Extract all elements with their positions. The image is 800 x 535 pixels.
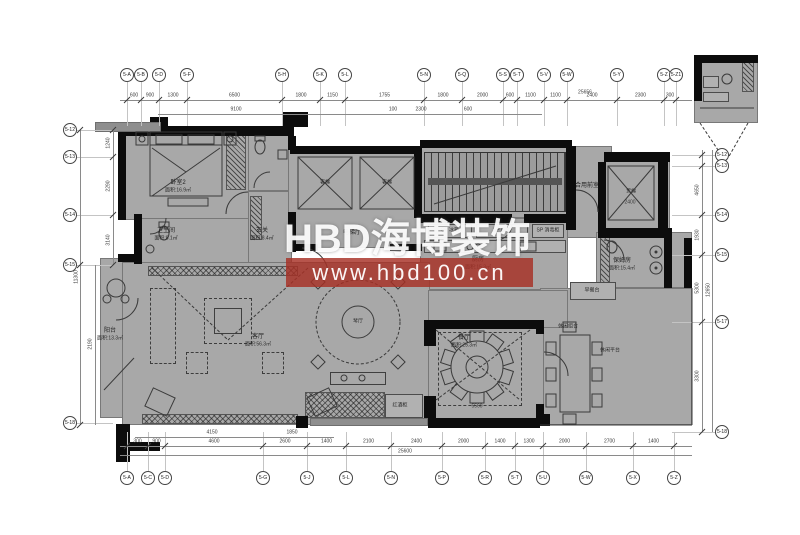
lounge-chair xyxy=(307,388,337,416)
grid-bubble: 5-13 xyxy=(715,159,729,173)
door-arc xyxy=(116,298,138,320)
dining-table xyxy=(451,341,503,393)
dim-tick xyxy=(459,97,465,103)
room-label: 厨房 xyxy=(472,257,484,263)
dimension-label: 300 xyxy=(133,440,141,445)
dimension-label: 1400 xyxy=(321,440,332,445)
grid-bubble: 5-T xyxy=(508,471,522,485)
burner xyxy=(475,244,481,250)
room-label: 阳台 xyxy=(104,328,116,334)
dim-tick xyxy=(184,97,190,103)
dimension-label: 9100 xyxy=(230,108,241,113)
dim-tick xyxy=(304,443,310,449)
grid-bubble: 5-L xyxy=(339,471,353,485)
grid-bubble: 5-18 xyxy=(715,425,729,439)
leisure-chair xyxy=(546,368,556,381)
dim-tick xyxy=(541,97,547,103)
nightstand xyxy=(136,132,148,145)
washer-dot xyxy=(655,267,658,270)
dimension-label: 1400 xyxy=(494,440,505,445)
dim-tick xyxy=(699,429,705,435)
dim-tick xyxy=(671,443,677,449)
leisure-table xyxy=(560,335,590,412)
dimension-label: 2000 xyxy=(559,440,570,445)
dim-tick xyxy=(162,443,168,449)
stool xyxy=(341,375,347,381)
grid-bubble: 5-A xyxy=(120,68,134,82)
lamp xyxy=(227,136,233,142)
room-label: 卧室2 xyxy=(170,180,185,186)
grid-bubble: 5-D xyxy=(152,68,166,82)
dimension-label: 4150 xyxy=(206,431,217,436)
grid-bubble: 5-J xyxy=(300,471,314,485)
column xyxy=(311,275,325,289)
room-label: 早餐台 xyxy=(584,289,599,294)
dimension-label: 25600 xyxy=(398,450,412,455)
dim-tick xyxy=(699,319,705,325)
dimension-label: 900 xyxy=(152,440,160,445)
sink xyxy=(520,242,536,251)
dim-tick xyxy=(514,97,520,103)
lounge-chair xyxy=(145,388,175,416)
room-label: 客厅 xyxy=(252,334,264,340)
dim-tick xyxy=(388,443,394,449)
dim-tick xyxy=(77,262,83,268)
pillow xyxy=(188,135,214,144)
room-label: 面积:15.4㎡ xyxy=(609,267,635,272)
room-label: 红酒柜 xyxy=(392,404,407,409)
dim-tick xyxy=(439,443,445,449)
balcony-mark xyxy=(104,358,134,390)
grid-bubble: 5-D xyxy=(158,471,172,485)
dimension-label: 1100 xyxy=(550,94,561,99)
basin xyxy=(146,245,154,253)
grid-bubble: 5-F xyxy=(180,68,194,82)
washer-dot xyxy=(655,251,658,254)
dimension-label: 2300 xyxy=(635,94,646,99)
dimension-label: 4650 xyxy=(696,184,701,195)
dimension-label: 2300 xyxy=(415,108,426,113)
dim-tick xyxy=(583,443,589,449)
dashed-line xyxy=(728,123,748,158)
grid-bubble: 5-X xyxy=(626,471,640,485)
dim-tick xyxy=(343,443,349,449)
room-label: 面积:15.3㎡ xyxy=(465,266,491,271)
bed xyxy=(150,132,222,196)
room-label: SP 消毒柜 xyxy=(537,229,560,234)
dim-tick xyxy=(482,443,488,449)
room-label: 电梯厅 xyxy=(343,230,361,236)
dimension-label: 1150 xyxy=(327,94,338,99)
dim-tick xyxy=(77,422,83,428)
room-label: 客梯 xyxy=(382,181,392,186)
dimension-label: 2100 xyxy=(363,440,374,445)
column xyxy=(391,355,405,369)
dimension-label: 1930 xyxy=(696,229,701,240)
dimension-label: 1800 xyxy=(437,94,448,99)
grid-bubble: 5-17 xyxy=(715,315,729,329)
grid-bubble: 5-A xyxy=(120,471,134,485)
pillow xyxy=(156,135,182,144)
grid-bubble: 5-14 xyxy=(63,208,77,222)
room-label: SP 橱柜 xyxy=(493,229,511,234)
dim-tick xyxy=(342,97,348,103)
lamp xyxy=(139,136,145,142)
grid-bubble: 5-R xyxy=(478,471,492,485)
dimension-label: 600 xyxy=(130,94,138,99)
dimension-label: 1755 xyxy=(379,94,390,99)
grid-bubble: 5-B xyxy=(134,68,148,82)
door-arc xyxy=(254,172,270,188)
bed-fold xyxy=(152,148,186,172)
column xyxy=(311,355,325,369)
dim-tick xyxy=(138,97,144,103)
balcony-chair xyxy=(121,295,129,303)
dimension-label: 2000 xyxy=(477,94,488,99)
dim-tick xyxy=(77,127,83,133)
stool xyxy=(359,375,365,381)
grid-bubble: 5-K xyxy=(313,68,327,82)
dashed-line xyxy=(700,123,718,150)
grid-bubble: 5-U xyxy=(536,471,550,485)
bed-bench xyxy=(168,198,208,206)
grid-bubble: 5-Z1 xyxy=(669,68,683,82)
dimension-label: 1300 xyxy=(523,440,534,445)
dimension-label: 12650 xyxy=(707,283,712,297)
dim-tick xyxy=(630,443,636,449)
room-label: 玄关 xyxy=(256,228,268,234)
room-label: SP 冰箱 xyxy=(441,229,459,234)
grid-bubble: 5-Y xyxy=(610,68,624,82)
dim-tick xyxy=(421,97,427,103)
dim-tick xyxy=(512,443,518,449)
dim-tick xyxy=(110,127,116,133)
dim-tick xyxy=(699,152,705,158)
dim-tick xyxy=(564,97,570,103)
room-label: 休闲平台 xyxy=(600,349,620,354)
grid-bubble: 5-N xyxy=(417,68,431,82)
dimension-label: 25656 xyxy=(578,91,592,96)
toilet xyxy=(607,241,617,253)
leisure-chair xyxy=(546,394,556,407)
toilet xyxy=(255,140,265,154)
grid-bubble: 5-15 xyxy=(63,258,77,272)
grid-bubble: 5-13 xyxy=(63,150,77,164)
dim-tick xyxy=(260,443,266,449)
leisure-chair xyxy=(592,394,602,407)
leisure-chair xyxy=(563,414,576,424)
grid-bubble: 5-S xyxy=(496,68,510,82)
dim-tick xyxy=(540,443,546,449)
grid-bubble: 5-Z xyxy=(667,471,681,485)
dimension-label: 600 xyxy=(464,108,472,113)
grid-bubble: 5-G xyxy=(256,471,270,485)
nightstand xyxy=(224,132,236,145)
dim-tick xyxy=(110,154,116,160)
dimension-label: 1850 xyxy=(286,431,297,436)
dimension-label: 4600 xyxy=(208,440,219,445)
dim-tick xyxy=(156,97,162,103)
room-label: 面积:16.9㎡ xyxy=(165,189,191,194)
room-label: 保姆房 xyxy=(613,258,631,264)
dimension-label: 1100 xyxy=(525,94,536,99)
grid-bubble: 5-T xyxy=(510,68,524,82)
dimension-label: 1300 xyxy=(167,94,178,99)
grid-bubble: 5-14 xyxy=(715,208,729,222)
dimension-label: 2000 xyxy=(458,440,469,445)
column xyxy=(391,275,405,289)
dimension-label: 3300 xyxy=(696,370,701,381)
room-label: 面积:8.4㎡ xyxy=(250,237,273,242)
dimension-label: 2600 xyxy=(279,440,290,445)
grid-bubble: 5-15 xyxy=(715,248,729,262)
dim-tick xyxy=(699,252,705,258)
dimension-label: 11300 xyxy=(75,270,80,284)
room-label: 面积:56.3㎡ xyxy=(245,343,271,348)
dimension-label: 2290 xyxy=(107,180,112,191)
room-label: 面积:25.3㎡ xyxy=(451,344,477,349)
dim-tick xyxy=(110,262,116,268)
room-label: 客梯 xyxy=(320,181,330,186)
dimension-label: 6500 xyxy=(229,94,240,99)
dim-tick xyxy=(145,443,151,449)
door-arc xyxy=(604,240,624,260)
dimension-label: 300 xyxy=(666,94,674,99)
dimension-label: 2700 xyxy=(604,440,615,445)
grid-bubble: 5-H xyxy=(275,68,289,82)
dimension-label: 1240 xyxy=(107,137,112,148)
grid-bubble: 5-12 xyxy=(63,123,77,137)
room-label: 面积:13.3㎡ xyxy=(97,337,123,342)
grid-bubble: 5-N xyxy=(384,471,398,485)
grid-bubble: 5-W xyxy=(560,68,574,82)
dimension-label: 2400 xyxy=(624,201,635,206)
room-label: 休闲组合 xyxy=(558,325,578,330)
dim-tick xyxy=(110,212,116,218)
floorplan-canvas: 5-A5-B5-D5-F5-H5-K5-L5-N5-Q5-S5-T5-V5-W5… xyxy=(0,0,800,535)
stair-arrow xyxy=(434,166,556,204)
grid-bubble: 5-C xyxy=(141,471,155,485)
grid-bubble: 5-Q xyxy=(455,68,469,82)
dimension-label: 600 xyxy=(506,94,514,99)
dimension-label: 2400 xyxy=(411,440,422,445)
dimension-label: 5560 xyxy=(471,405,482,410)
leisure-chair xyxy=(592,368,602,381)
door-arc xyxy=(576,190,598,212)
dimension-label: 1800 xyxy=(295,94,306,99)
grid-bubble: 5-W xyxy=(579,471,593,485)
dashed-line xyxy=(152,268,228,340)
inset-fixture xyxy=(722,74,732,84)
room-label: 货梯 xyxy=(626,190,636,195)
dimension-label: 2190 xyxy=(89,338,94,349)
dimension-label: 5300 xyxy=(696,282,701,293)
dimension-label: 3140 xyxy=(107,234,112,245)
basin xyxy=(278,150,287,159)
sink xyxy=(434,243,446,251)
grid-bubble: 5-L xyxy=(338,68,352,82)
room-label: 卫生间 xyxy=(157,228,175,234)
dim-tick xyxy=(614,97,620,103)
dim-tick xyxy=(124,443,130,449)
dimension-label: 100 xyxy=(389,108,397,113)
balcony-table xyxy=(107,279,125,297)
door-arc xyxy=(226,192,248,214)
grid-bubble: 5-P xyxy=(435,471,449,485)
dimension-label: 900 xyxy=(146,94,154,99)
grid-bubble: 5-18 xyxy=(63,416,77,430)
room-label: 合用前室 xyxy=(575,183,599,189)
dim-tick xyxy=(317,97,323,103)
room-label: 面积:8.1㎡ xyxy=(154,237,177,242)
balcony-chair xyxy=(103,295,111,303)
burner xyxy=(467,244,473,250)
dashed-line xyxy=(228,268,308,340)
room-label: 餐厅 xyxy=(458,335,470,341)
dim-tick xyxy=(279,97,285,103)
grid-bubble: 5-V xyxy=(537,68,551,82)
room-label: 琴厅 xyxy=(353,320,363,325)
dim-tick xyxy=(699,163,705,169)
dimension-label: 1400 xyxy=(648,440,659,445)
dim-tick xyxy=(699,212,705,218)
